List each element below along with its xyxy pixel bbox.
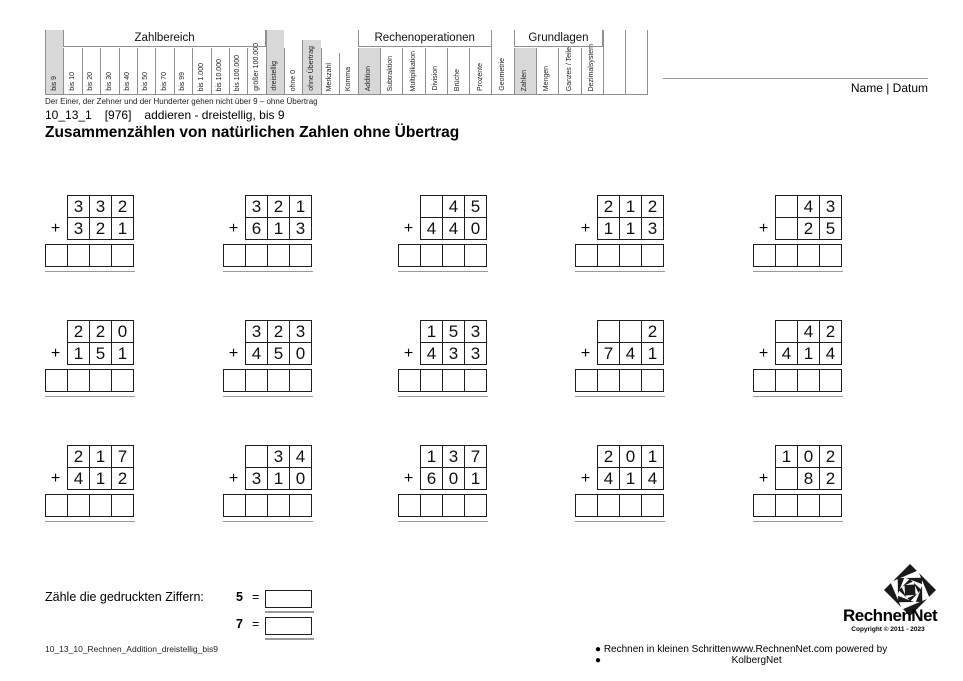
answer-cell[interactable] bbox=[224, 495, 246, 517]
answer-cell[interactable] bbox=[46, 495, 68, 517]
operand-cell: 3 bbox=[820, 196, 842, 218]
answer-cell[interactable] bbox=[776, 245, 798, 267]
answer-cell[interactable] bbox=[754, 245, 776, 267]
operand-cell: 4 bbox=[798, 321, 820, 343]
operand-cell: 2 bbox=[268, 196, 290, 218]
operand-cell: 3 bbox=[90, 196, 112, 218]
answer-cell[interactable] bbox=[620, 245, 642, 267]
header-column-label: bis 99 bbox=[179, 69, 187, 94]
answer-cell[interactable] bbox=[112, 245, 134, 267]
addition-problem: + 1 0 2 8 2 bbox=[753, 445, 843, 523]
header-column-subtraktion: Subtraktion bbox=[380, 48, 402, 95]
answer-cell[interactable] bbox=[290, 245, 312, 267]
header-group-grundlagen: Grundlagen bbox=[514, 30, 603, 47]
header-column-bis-100-000: bis 100.000 bbox=[229, 48, 247, 95]
answer-cell[interactable] bbox=[421, 370, 443, 392]
operand-cell: 3 bbox=[68, 196, 90, 218]
answer-cell[interactable] bbox=[776, 495, 798, 517]
header-group-rechenoperationen: Rechenoperationen bbox=[358, 30, 492, 47]
equals-sign: = bbox=[252, 617, 259, 631]
result-underline bbox=[45, 271, 135, 273]
answer-cell[interactable] bbox=[68, 245, 90, 267]
operand-cell: 0 bbox=[112, 321, 134, 343]
answer-cell[interactable] bbox=[465, 495, 487, 517]
answer-row bbox=[45, 244, 134, 267]
operand-cell: 0 bbox=[798, 446, 820, 468]
header-column-label: Zahlen bbox=[521, 67, 529, 94]
count-box-underline bbox=[265, 638, 314, 640]
operand-cell: 2 bbox=[90, 321, 112, 343]
header-column-label: bis 10 bbox=[69, 69, 77, 94]
header-column-zahlen: Zahlen bbox=[514, 48, 536, 95]
operand-cell: 8 bbox=[798, 468, 820, 490]
answer-row bbox=[753, 494, 842, 517]
answer-row bbox=[575, 369, 664, 392]
count-digit: 7 bbox=[236, 617, 250, 631]
operand-grid: 1 3 7 6 0 1 bbox=[420, 445, 487, 490]
header-column-bis-10: bis 10 bbox=[63, 48, 81, 95]
answer-cell[interactable] bbox=[620, 495, 642, 517]
operand-grid: 2 1 2 1 1 3 bbox=[597, 195, 664, 240]
operand-cell: 3 bbox=[246, 321, 268, 343]
result-underline bbox=[45, 396, 135, 398]
header-column-label: bis 100.000 bbox=[234, 52, 242, 94]
answer-cell[interactable] bbox=[246, 370, 268, 392]
result-underline bbox=[398, 521, 488, 523]
answer-cell[interactable] bbox=[246, 245, 268, 267]
operand-cell: 7 bbox=[465, 446, 487, 468]
answer-cell[interactable] bbox=[421, 245, 443, 267]
page-title: Zusammenzählen von natürlichen Zahlen oh… bbox=[45, 124, 459, 142]
operand-cell: 1 bbox=[268, 218, 290, 240]
header-column-label: bis 10.000 bbox=[216, 56, 224, 94]
operand-cell: 5 bbox=[90, 343, 112, 365]
header-column-label: bis 1.000 bbox=[198, 60, 206, 94]
header-column-bis-40: bis 40 bbox=[119, 48, 137, 95]
plus-sign: + bbox=[398, 342, 419, 365]
answer-cell[interactable] bbox=[576, 245, 598, 267]
operand-cell bbox=[246, 446, 268, 468]
operand-cell: 1 bbox=[642, 343, 664, 365]
addition-problem: + 2 2 0 1 5 1 bbox=[45, 320, 135, 398]
answer-row bbox=[398, 244, 487, 267]
operand-cell: 3 bbox=[246, 196, 268, 218]
header-column-bis-1-000: bis 1.000 bbox=[192, 48, 210, 95]
worksheet-page: { "colors": { "highlight": "#d8d8d8", "t… bbox=[0, 0, 963, 681]
footer-filename: 10_13_10_Rechnen_Addition_dreistellig_bi… bbox=[45, 644, 218, 654]
operand-grid: 3 2 3 4 5 0 bbox=[245, 320, 312, 365]
operand-cell: 1 bbox=[90, 468, 112, 490]
operand-cell bbox=[421, 196, 443, 218]
header-column-label: bis 40 bbox=[124, 69, 132, 94]
header-column-label: Komma bbox=[345, 64, 353, 94]
operand-cell: 1 bbox=[620, 196, 642, 218]
answer-cell[interactable] bbox=[224, 370, 246, 392]
result-underline bbox=[575, 271, 665, 273]
operand-cell: 1 bbox=[112, 343, 134, 365]
header-column-label: Dezimalsystem bbox=[588, 41, 596, 94]
operand-cell: 2 bbox=[820, 468, 842, 490]
operand-grid: 2 0 1 4 1 4 bbox=[597, 445, 664, 490]
header-column-label: Addition bbox=[365, 63, 373, 94]
operand-cell: 3 bbox=[290, 321, 312, 343]
header-column-label: bis 9 bbox=[51, 73, 59, 94]
operand-cell: 4 bbox=[820, 343, 842, 365]
result-underline bbox=[575, 521, 665, 523]
plus-sign: + bbox=[223, 217, 244, 240]
operand-cell: 0 bbox=[443, 468, 465, 490]
header-column-ohne-bertrag: ohne Übertrag bbox=[302, 40, 320, 95]
header-column-bis-30: bis 30 bbox=[100, 48, 118, 95]
addition-problem: + 4 3 2 5 bbox=[753, 195, 843, 273]
operand-grid: 4 3 2 5 bbox=[775, 195, 842, 240]
header-column-br-che: Brüche bbox=[447, 48, 469, 95]
operand-cell: 0 bbox=[620, 446, 642, 468]
header-group-label: Zahlbereich bbox=[135, 32, 195, 44]
header-column-label: ohne Übertrag bbox=[308, 43, 316, 94]
addition-problem: + 3 2 1 6 1 3 bbox=[223, 195, 313, 273]
header-group-label: Grundlagen bbox=[528, 32, 588, 44]
header-group-label: Rechenoperationen bbox=[375, 32, 475, 44]
header-column-label: größer 100.000 bbox=[253, 40, 261, 94]
footer-website: www.RechnenNet.com powered by KolbergNet bbox=[732, 644, 928, 666]
operand-cell: 1 bbox=[112, 218, 134, 240]
answer-row bbox=[223, 494, 312, 517]
operand-cell: 3 bbox=[465, 343, 487, 365]
header-group-zahlbereich: Zahlbereich bbox=[63, 30, 265, 47]
addition-problem: + 3 2 3 4 5 0 bbox=[223, 320, 313, 398]
answer-row bbox=[753, 369, 842, 392]
header-column-empty bbox=[603, 30, 625, 95]
count-answer-box[interactable] bbox=[265, 590, 312, 608]
answer-cell[interactable] bbox=[268, 495, 290, 517]
plus-sign: + bbox=[575, 467, 596, 490]
result-underline bbox=[753, 396, 843, 398]
plus-sign: + bbox=[45, 342, 66, 365]
answer-cell[interactable] bbox=[268, 370, 290, 392]
answer-row bbox=[223, 244, 312, 267]
answer-cell[interactable] bbox=[399, 245, 421, 267]
operand-cell: 4 bbox=[443, 196, 465, 218]
result-underline bbox=[753, 271, 843, 273]
operand-cell: 4 bbox=[642, 468, 664, 490]
operand-cell: 1 bbox=[620, 468, 642, 490]
operand-cell: 1 bbox=[776, 446, 798, 468]
header-column-label: Multiplikation bbox=[410, 48, 418, 94]
operand-cell: 2 bbox=[642, 321, 664, 343]
header-column-label: Prozente bbox=[477, 60, 485, 94]
header-column-komma: Komma bbox=[339, 53, 357, 95]
operand-cell: 4 bbox=[421, 218, 443, 240]
answer-cell[interactable] bbox=[576, 495, 598, 517]
answer-cell[interactable] bbox=[112, 370, 134, 392]
header-column-label: Subtraktion bbox=[387, 53, 395, 94]
answer-row bbox=[398, 369, 487, 392]
header-column-label: Merkzahl bbox=[326, 60, 334, 94]
operand-cell: 2 bbox=[820, 446, 842, 468]
plus-sign: + bbox=[223, 467, 244, 490]
operand-cell: 0 bbox=[290, 343, 312, 365]
operand-cell: 1 bbox=[798, 343, 820, 365]
plus-sign: + bbox=[398, 467, 419, 490]
answer-cell[interactable] bbox=[620, 370, 642, 392]
header-column-label: bis 20 bbox=[87, 69, 95, 94]
answer-cell[interactable] bbox=[68, 370, 90, 392]
result-underline bbox=[575, 396, 665, 398]
operand-cell: 2 bbox=[598, 196, 620, 218]
category-table: bis 9bis 10bis 20bis 30bis 40bis 50bis 7… bbox=[45, 30, 649, 95]
answer-cell[interactable] bbox=[290, 495, 312, 517]
plus-sign: + bbox=[575, 342, 596, 365]
operand-grid: 4 5 4 4 0 bbox=[420, 195, 487, 240]
addition-problem: + 4 5 4 4 0 bbox=[398, 195, 488, 273]
operand-cell: 3 bbox=[443, 446, 465, 468]
header-column-bis-99: bis 99 bbox=[174, 48, 192, 95]
answer-cell[interactable] bbox=[598, 245, 620, 267]
addition-problem: + 2 0 1 4 1 4 bbox=[575, 445, 665, 523]
addition-problem: + 2 1 2 1 1 3 bbox=[575, 195, 665, 273]
plus-sign: + bbox=[753, 217, 774, 240]
result-underline bbox=[398, 271, 488, 273]
header-column-bis-9: bis 9 bbox=[45, 30, 63, 95]
operand-cell: 4 bbox=[290, 446, 312, 468]
answer-cell[interactable] bbox=[798, 495, 820, 517]
operand-cell: 2 bbox=[268, 321, 290, 343]
answer-cell[interactable] bbox=[776, 370, 798, 392]
operand-cell: 1 bbox=[68, 343, 90, 365]
addition-problem: + 2 1 7 4 1 2 bbox=[45, 445, 135, 523]
answer-cell[interactable] bbox=[820, 370, 842, 392]
operand-cell: 6 bbox=[421, 468, 443, 490]
answer-cell[interactable] bbox=[465, 245, 487, 267]
addition-problem: + 1 3 7 6 0 1 bbox=[398, 445, 488, 523]
plus-sign: + bbox=[753, 342, 774, 365]
header-column-label: dreistellig bbox=[271, 58, 279, 94]
addition-problem: + 3 4 3 1 0 bbox=[223, 445, 313, 523]
operand-grid: 3 2 1 6 1 3 bbox=[245, 195, 312, 240]
operand-cell bbox=[776, 321, 798, 343]
logo-text: RechnenNet bbox=[843, 606, 933, 626]
answer-cell[interactable] bbox=[90, 245, 112, 267]
operand-cell: 0 bbox=[465, 218, 487, 240]
header-column-bis-70: bis 70 bbox=[155, 48, 173, 95]
worksheet-note: Der Einer, der Zehner und der Hunderter … bbox=[45, 97, 318, 106]
answer-cell[interactable] bbox=[399, 370, 421, 392]
operand-cell: 1 bbox=[620, 218, 642, 240]
operand-cell: 2 bbox=[598, 446, 620, 468]
answer-cell[interactable] bbox=[268, 245, 290, 267]
header-column-merkzahl: Merkzahl bbox=[321, 48, 339, 95]
operand-grid: 1 0 2 8 2 bbox=[775, 445, 842, 490]
logo-copyright: Copyright © 2011 - 2023 bbox=[843, 626, 933, 633]
answer-row bbox=[223, 369, 312, 392]
count-box-underline bbox=[265, 611, 314, 613]
answer-cell[interactable] bbox=[642, 495, 664, 517]
operand-cell: 4 bbox=[421, 343, 443, 365]
operand-grid: 1 5 3 4 3 3 bbox=[420, 320, 487, 365]
result-underline bbox=[45, 521, 135, 523]
result-underline bbox=[223, 271, 313, 273]
worksheet-ref: [976] bbox=[105, 108, 132, 122]
answer-cell[interactable] bbox=[754, 495, 776, 517]
count-digit: 5 bbox=[236, 590, 250, 604]
operand-grid: 4 2 4 1 4 bbox=[775, 320, 842, 365]
answer-cell[interactable] bbox=[290, 370, 312, 392]
count-answer-box[interactable] bbox=[265, 617, 312, 635]
header-column-bis-20: bis 20 bbox=[82, 48, 100, 95]
answer-row bbox=[753, 244, 842, 267]
header-column-addition: Addition bbox=[358, 48, 380, 95]
count-task-label: Zähle die gedruckten Ziffern: bbox=[45, 590, 204, 604]
result-underline bbox=[223, 396, 313, 398]
header-column-division: Division bbox=[425, 48, 447, 95]
answer-cell[interactable] bbox=[820, 495, 842, 517]
header-column-bis-10-000: bis 10.000 bbox=[211, 48, 229, 95]
header-column-prozente: Prozente bbox=[469, 48, 491, 95]
answer-cell[interactable] bbox=[598, 495, 620, 517]
footer-right: ● Rechnen in kleinen Schritten ● www.Rec… bbox=[595, 644, 928, 666]
addition-problem: + 2 7 4 1 bbox=[575, 320, 665, 398]
operand-cell: 2 bbox=[68, 321, 90, 343]
operand-cell: 3 bbox=[290, 218, 312, 240]
answer-cell[interactable] bbox=[443, 495, 465, 517]
operand-cell: 7 bbox=[598, 343, 620, 365]
answer-row bbox=[45, 494, 134, 517]
answer-cell[interactable] bbox=[754, 370, 776, 392]
answer-row bbox=[575, 494, 664, 517]
equals-sign: = bbox=[252, 590, 259, 604]
operand-cell bbox=[776, 196, 798, 218]
operand-grid: 3 4 3 1 0 bbox=[245, 445, 312, 490]
operand-cell: 1 bbox=[642, 446, 664, 468]
answer-row bbox=[398, 494, 487, 517]
answer-cell[interactable] bbox=[443, 370, 465, 392]
header-column-label: Geometrie bbox=[499, 55, 507, 94]
header-column-label: bis 50 bbox=[142, 69, 150, 94]
operand-cell: 3 bbox=[68, 218, 90, 240]
worksheet-subtitle: addieren - dreistellig, bis 9 bbox=[144, 108, 284, 122]
operand-cell: 3 bbox=[268, 446, 290, 468]
operand-cell: 5 bbox=[268, 343, 290, 365]
plus-sign: + bbox=[45, 217, 66, 240]
answer-cell[interactable] bbox=[90, 495, 112, 517]
header-column-geometrie: Geometrie bbox=[491, 30, 513, 95]
operand-cell: 3 bbox=[246, 468, 268, 490]
header-column-ganzes-teile: Ganzes / Teile bbox=[558, 48, 580, 95]
operand-cell: 3 bbox=[465, 321, 487, 343]
operand-cell: 2 bbox=[642, 196, 664, 218]
operand-cell: 2 bbox=[112, 196, 134, 218]
answer-cell[interactable] bbox=[465, 370, 487, 392]
answer-cell[interactable] bbox=[224, 245, 246, 267]
header-column-label: Ganzes / Teile bbox=[566, 44, 574, 94]
operand-cell: 2 bbox=[798, 218, 820, 240]
operand-cell: 5 bbox=[820, 218, 842, 240]
operand-cell: 4 bbox=[776, 343, 798, 365]
operand-cell bbox=[598, 321, 620, 343]
header-column-label: bis 70 bbox=[161, 69, 169, 94]
answer-cell[interactable] bbox=[421, 495, 443, 517]
operand-grid: 2 1 7 4 1 2 bbox=[67, 445, 134, 490]
answer-cell[interactable] bbox=[443, 245, 465, 267]
operand-cell: 0 bbox=[290, 468, 312, 490]
answer-cell[interactable] bbox=[46, 370, 68, 392]
operand-cell: 3 bbox=[642, 218, 664, 240]
addition-problem: + 4 2 4 1 4 bbox=[753, 320, 843, 398]
operand-grid: 3 3 2 3 2 1 bbox=[67, 195, 134, 240]
answer-row bbox=[575, 244, 664, 267]
name-date-label: Name | Datum bbox=[663, 81, 928, 95]
operand-grid: 2 7 4 1 bbox=[597, 320, 664, 365]
operand-cell bbox=[620, 321, 642, 343]
operand-cell: 1 bbox=[90, 446, 112, 468]
operand-cell: 4 bbox=[246, 343, 268, 365]
answer-cell[interactable] bbox=[642, 245, 664, 267]
operand-cell bbox=[776, 218, 798, 240]
result-underline bbox=[223, 521, 313, 523]
plus-sign: + bbox=[223, 342, 244, 365]
answer-cell[interactable] bbox=[820, 245, 842, 267]
operand-cell: 1 bbox=[268, 468, 290, 490]
operand-cell: 4 bbox=[620, 343, 642, 365]
header-column-mengen: Mengen bbox=[536, 48, 558, 95]
plus-sign: + bbox=[398, 217, 419, 240]
header-column-label: bis 30 bbox=[106, 69, 114, 94]
answer-cell[interactable] bbox=[798, 245, 820, 267]
worksheet-code: 10_13_1 bbox=[45, 108, 92, 122]
operand-cell: 2 bbox=[112, 468, 134, 490]
header-column-multiplikation: Multiplikation bbox=[402, 48, 424, 95]
operand-cell: 5 bbox=[465, 196, 487, 218]
operand-cell: 4 bbox=[598, 468, 620, 490]
answer-cell[interactable] bbox=[598, 370, 620, 392]
header-column-dezimalsystem: Dezimalsystem bbox=[581, 48, 603, 95]
operand-cell: 2 bbox=[820, 321, 842, 343]
header-column-label: Mengen bbox=[543, 63, 551, 94]
answer-cell[interactable] bbox=[68, 495, 90, 517]
operand-cell: 4 bbox=[798, 196, 820, 218]
operand-cell bbox=[776, 468, 798, 490]
operand-cell: 5 bbox=[443, 321, 465, 343]
answer-cell[interactable] bbox=[112, 495, 134, 517]
header-column-bis-50: bis 50 bbox=[137, 48, 155, 95]
header-column-empty bbox=[625, 30, 647, 95]
header-column-dreistellig: dreistellig bbox=[266, 30, 284, 95]
plus-sign: + bbox=[45, 467, 66, 490]
header-column-gr-er-100-000: größer 100.000 bbox=[247, 48, 265, 95]
header-column-label: ohne 0 bbox=[290, 67, 298, 94]
plus-sign: + bbox=[753, 467, 774, 490]
header-column-ohne-0: ohne 0 bbox=[284, 48, 302, 95]
result-underline bbox=[753, 521, 843, 523]
footer-slogan: ● Rechnen in kleinen Schritten ● bbox=[595, 644, 732, 666]
operand-cell: 1 bbox=[290, 196, 312, 218]
plus-sign: + bbox=[575, 217, 596, 240]
operand-cell: 3 bbox=[443, 343, 465, 365]
addition-problem: + 1 5 3 4 3 3 bbox=[398, 320, 488, 398]
answer-cell[interactable] bbox=[798, 370, 820, 392]
operand-cell: 4 bbox=[68, 468, 90, 490]
answer-cell[interactable] bbox=[642, 370, 664, 392]
answer-cell[interactable] bbox=[576, 370, 598, 392]
header-column-label: Brüche bbox=[454, 66, 462, 94]
answer-cell[interactable] bbox=[46, 245, 68, 267]
answer-cell[interactable] bbox=[399, 495, 421, 517]
operand-cell: 1 bbox=[465, 468, 487, 490]
worksheet-code-line: 10_13_1 [976] addieren - dreistellig, bi… bbox=[45, 108, 285, 122]
answer-cell[interactable] bbox=[90, 370, 112, 392]
answer-cell[interactable] bbox=[246, 495, 268, 517]
